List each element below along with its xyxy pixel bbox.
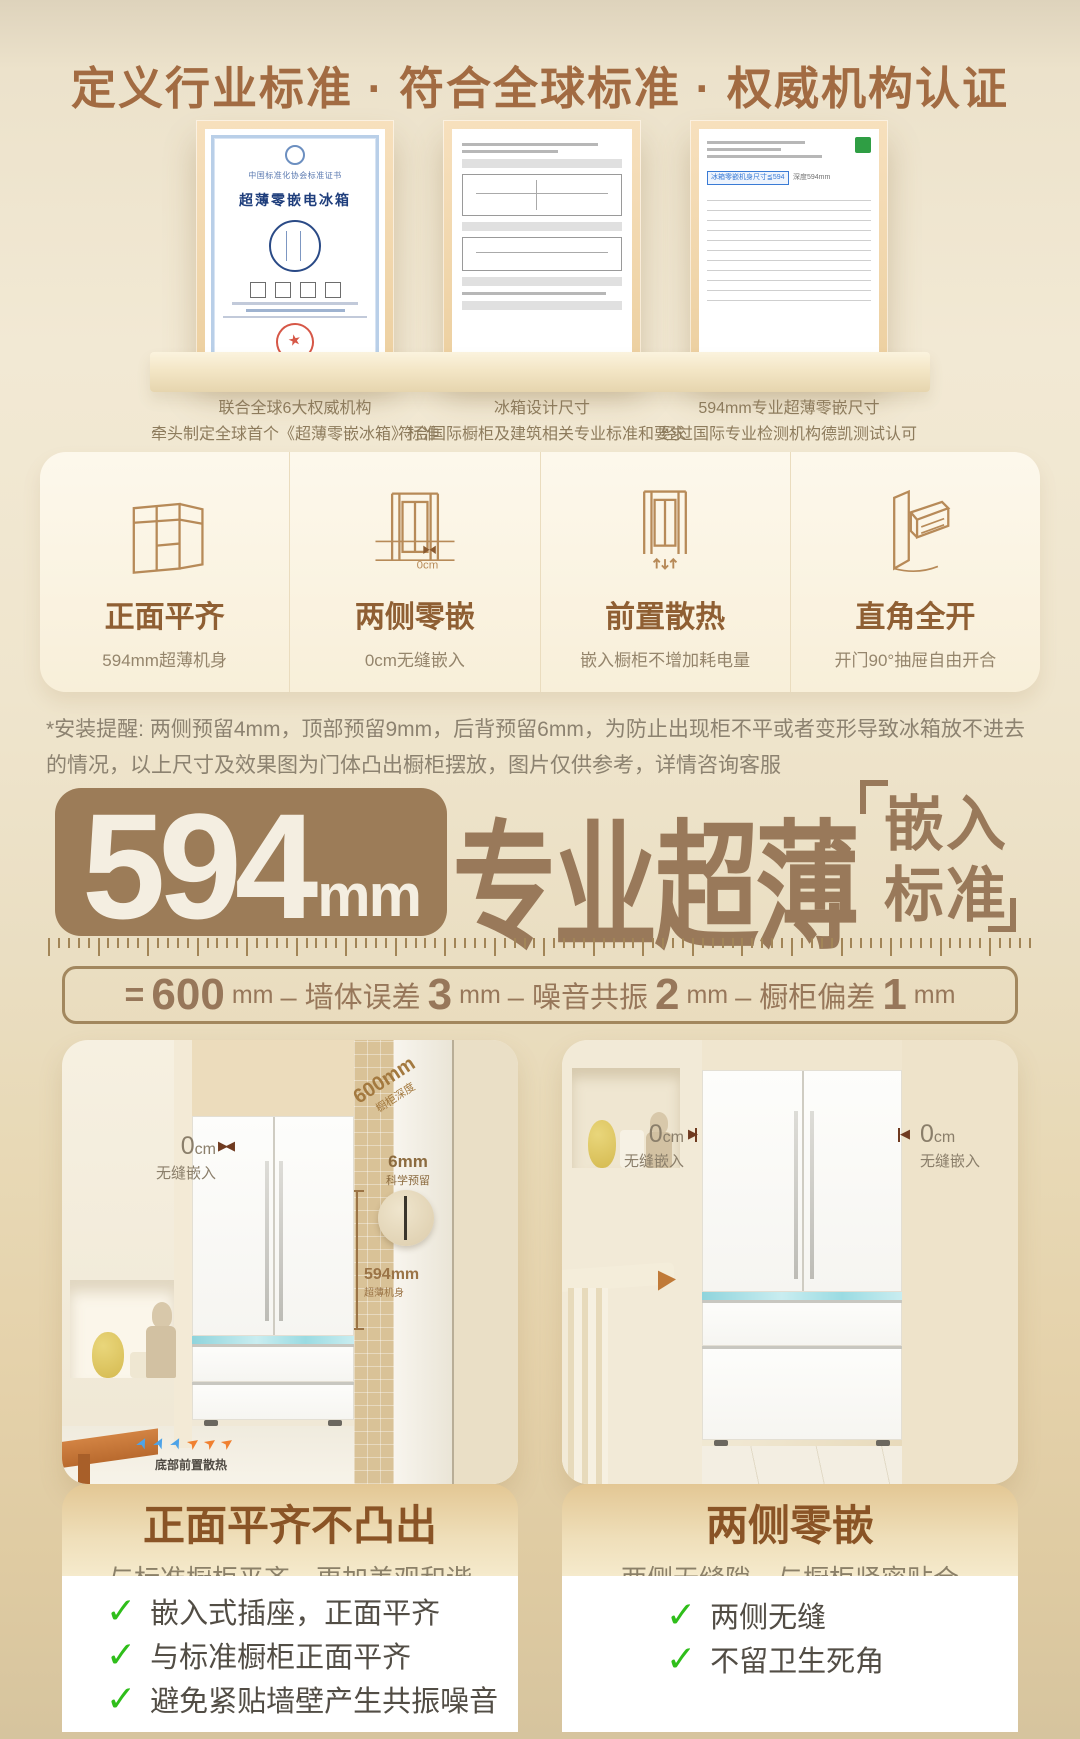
photo-zero-gap-sides: 0cm 无缝嵌入 ▶ 0cm 无缝嵌入 ◀ (562, 1040, 1018, 1484)
fridge-drawer-2 (192, 1382, 354, 1420)
reserve-gap-annotation: 6mm 科学预留 (368, 1152, 448, 1188)
feature-card: 正面平齐 594mm超薄机身 0cm 两侧零嵌 0cm无缝嵌入 (40, 452, 1040, 692)
check-icon: ✓ (666, 1597, 696, 1633)
card-title: 两侧零嵌 (562, 1492, 1018, 1553)
certificate-1-paper: 中国标准化协会标准证书 超薄零嵌电冰箱 ★ (205, 129, 385, 365)
fridge-drawer-1 (192, 1344, 354, 1382)
vase-decor (92, 1332, 124, 1378)
vent-arrows-icon: ➤ ➤ ➤ ➤ ➤ ➤ (136, 1434, 234, 1453)
right-gap-arrow-icon: ◀ (898, 1126, 907, 1142)
photo-front-flush: 0cm 无缝嵌入 ▶◀ 600mm 橱柜深度 6mm 科学预留 594mm 超薄… (62, 1040, 518, 1484)
check-item: 嵌入式插座，正面平齐 (150, 1590, 440, 1632)
card-zero-gap-checklist: ✓ 两侧无缝 ✓ 不留卫生死角 (562, 1576, 1018, 1732)
fridge-diagram-icon (269, 220, 321, 272)
product-detail-page: 定义行业标准 · 符合全球标准 · 权威机构认证 中国标准化协会标准证书 超薄零… (0, 0, 1080, 1739)
certificate-3-caption: 594mm专业超薄零嵌尺寸 经过国际专业检测机构德凯测试认可 (609, 396, 969, 449)
check-icon: ✓ (666, 1641, 696, 1677)
fridge-accent-strip (192, 1336, 354, 1344)
display-shelf (150, 352, 930, 392)
fridge-doors (192, 1116, 354, 1336)
headline-594-badge: 594 mm (55, 788, 447, 936)
console-slats (568, 1288, 608, 1484)
feature-right-angle-open: 直角全开 开门90°抽屉自由开合 (790, 452, 1040, 692)
front-vent-icon (541, 468, 790, 590)
headline-unit: mm (317, 866, 420, 926)
certificate-frame-1: 中国标准化协会标准证书 超薄零嵌电冰箱 ★ (196, 120, 394, 374)
certificate-3-paper: 冰箱零嵌机身尺寸≦594 深度594mm (699, 129, 879, 365)
certificate-3-highlight: 冰箱零嵌机身尺寸≦594 (707, 171, 789, 185)
gap-magnifier-icon (378, 1190, 434, 1246)
fridge-drawer-2 (702, 1346, 902, 1440)
page-title: 定义行业标准 · 符合全球标准 · 权威机构认证 (0, 52, 1080, 117)
left-zero-gap-annotation: 0cm 无缝嵌入 (588, 1120, 684, 1171)
headline-number: 594 (82, 805, 311, 928)
card-front-flush-checklist: ✓ 嵌入式插座，正面平齐 ✓ 与标准橱柜正面平齐 ✓ 避免紧贴墙壁产生共振噪音 (62, 1576, 518, 1732)
vent-annotation: 底部前置散热 (116, 1456, 266, 1473)
feature-front-vent: 前置散热 嵌入橱柜不增加耗电量 (540, 452, 790, 692)
fridge-drawer-1 (702, 1300, 902, 1346)
feature-zero-gap-sides: 0cm 两侧零嵌 0cm无缝嵌入 (289, 452, 539, 692)
check-icon: ✓ (106, 1637, 136, 1673)
certificate-1-icon-row (205, 282, 385, 298)
check-item: 避免紧贴墙壁产生共振噪音 (150, 1678, 498, 1720)
fridge-doors (702, 1070, 902, 1292)
check-icon: ✓ (106, 1681, 136, 1717)
check-item: 两侧无缝 (710, 1594, 826, 1636)
certificate-frame-3: 冰箱零嵌机身尺寸≦594 深度594mm (690, 120, 888, 374)
certificate-3-highlight-side: 深度594mm (793, 174, 830, 181)
ruler (48, 938, 1032, 958)
body-height-dimension (356, 1192, 358, 1328)
association-emblem-icon (285, 145, 305, 165)
feature-front-flush: 正面平齐 594mm超薄机身 (40, 452, 289, 692)
test-lab-logo-icon (855, 137, 871, 153)
formula-box: = 600mm – 墙体误差 3mm – 噪音共振 2mm – 橱柜偏差 1mm (62, 966, 1018, 1024)
certificate-2-paper (452, 129, 632, 365)
certificate-1-org: 中国标准化协会标准证书 (205, 170, 385, 181)
check-item: 不留卫生死角 (710, 1638, 884, 1680)
certificate-1-title: 超薄零嵌电冰箱 (205, 190, 385, 210)
gap-arrows-icon: ▶◀ (218, 1138, 232, 1154)
card-front-flush-header: 正面平齐不凸出 与标准橱柜平齐，更加美观和谐 (62, 1484, 518, 1576)
dimension-diagram-1 (462, 174, 622, 216)
left-gap-arrow-icon: ▶ (688, 1126, 697, 1142)
certificate-frame-2 (443, 120, 641, 374)
bust-sculpture (152, 1302, 172, 1328)
cabinet-front-icon (40, 468, 289, 590)
door-frame-0cm-icon: 0cm (290, 468, 539, 590)
fridge-accent-strip (702, 1292, 902, 1300)
svg-text:0cm: 0cm (417, 560, 439, 572)
headline-bracket: 嵌入 标准 (860, 780, 1020, 932)
dimension-diagram-2 (462, 237, 622, 271)
body-size-annotation: 594mm 超薄机身 (364, 1266, 419, 1299)
right-angle-door-icon (791, 468, 1040, 590)
card-title: 正面平齐不凸出 (62, 1492, 518, 1553)
zero-gap-annotation: 0cm 无缝嵌入 (98, 1132, 216, 1183)
check-icon: ✓ (106, 1593, 136, 1629)
right-zero-gap-annotation: 0cm 无缝嵌入 (920, 1120, 1016, 1171)
card-zero-gap-header: 两侧零嵌 两侧无缝隙，与橱柜紧密贴合 (562, 1484, 1018, 1576)
check-item: 与标准橱柜正面平齐 (150, 1634, 411, 1676)
